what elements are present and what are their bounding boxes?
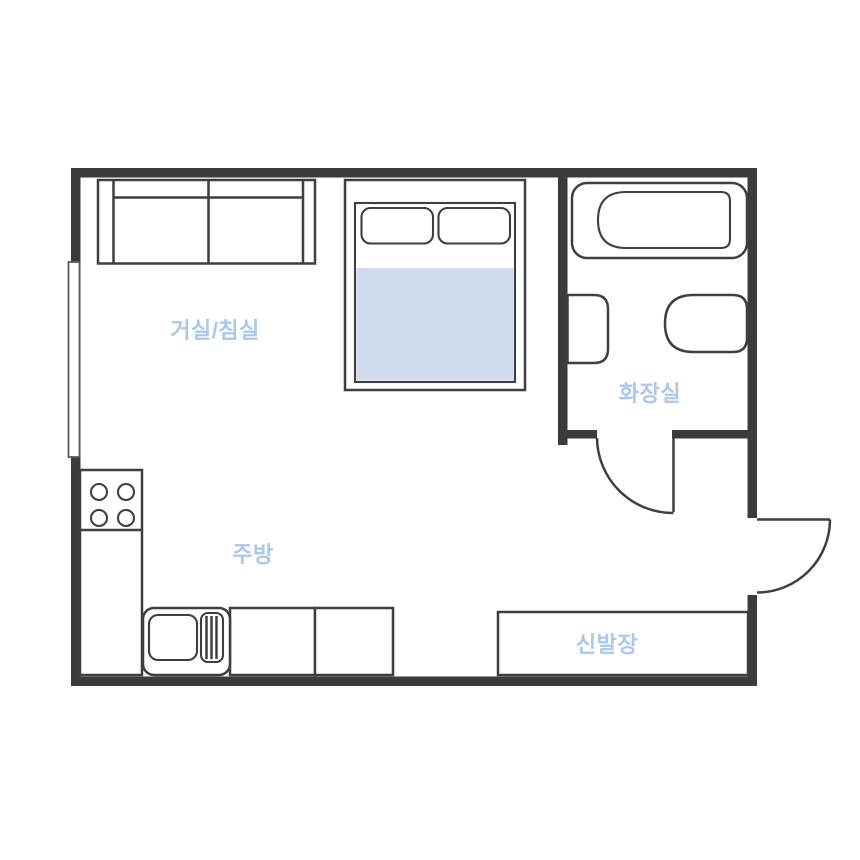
counter-left-column	[80, 470, 142, 675]
sofa-body	[98, 180, 315, 264]
counter-bottom-right	[315, 608, 393, 675]
floor-plan: 거실/침실 주방 화장실 신발장	[0, 0, 860, 860]
room-label-kitchen: 주방	[232, 537, 273, 569]
bathroom-door-arc	[597, 438, 674, 513]
bathtub	[572, 183, 747, 258]
wall-bottom	[71, 677, 757, 687]
kitchen-sink-basin	[149, 615, 197, 660]
wall-right-upper	[748, 168, 758, 518]
entrance-door	[757, 520, 830, 593]
toilet	[665, 295, 747, 352]
floor-plan-drawing	[0, 0, 860, 860]
bathtub-basin	[598, 192, 730, 248]
room-label-bathroom: 화장실	[619, 376, 681, 408]
bathroom-wall-left	[558, 172, 568, 445]
wall-top	[71, 168, 757, 178]
pillow-left	[362, 208, 434, 244]
bathroom-wall-bottom-left	[558, 430, 597, 439]
burner	[118, 484, 134, 500]
room-label-living-bedroom: 거실/침실	[170, 313, 260, 345]
burner	[118, 510, 134, 526]
bathroom-wall-bottom-right	[672, 430, 752, 439]
counter-bottom-middle	[230, 608, 315, 675]
burner	[91, 510, 107, 526]
entrance-door-arc	[757, 520, 830, 593]
bathroom-door	[597, 436, 674, 513]
kitchen-sink-unit	[143, 608, 230, 675]
bed-blanket	[357, 268, 514, 381]
bed	[345, 180, 525, 390]
pillow-right	[439, 208, 511, 244]
window	[69, 262, 80, 457]
sofa	[98, 180, 315, 264]
bathroom-sink	[568, 295, 609, 363]
burner	[91, 484, 107, 500]
shoe-cabinet-label: 신발장	[576, 627, 638, 659]
